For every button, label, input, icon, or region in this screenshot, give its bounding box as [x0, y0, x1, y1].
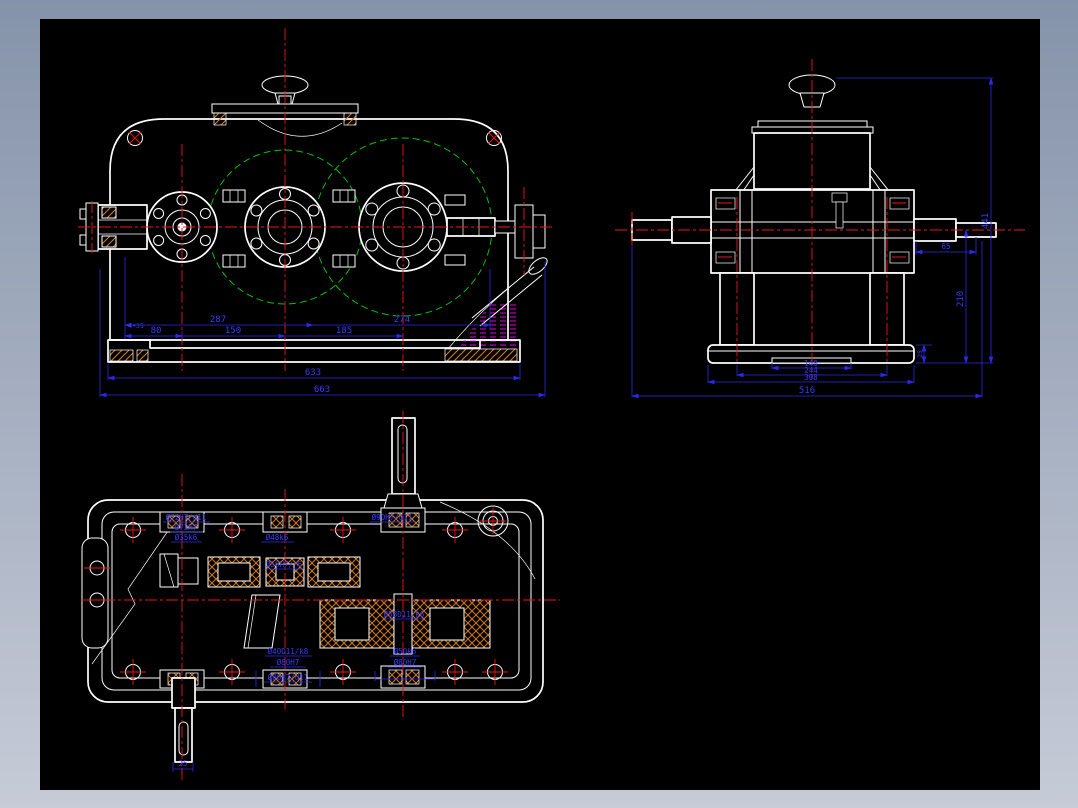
fit-input-cover: Ø72H7/d11: [166, 513, 207, 522]
dim-65: 65: [941, 242, 950, 251]
dim-516: 516: [799, 386, 815, 396]
dim-25-base: 25: [916, 350, 924, 358]
fit-output-cover: Ø90H7/d11: [372, 513, 413, 522]
cad-drawing: 287 274 4+35 80 150 185 633 663: [40, 19, 1040, 790]
plan-left-end-cover: [82, 538, 108, 648]
front-view: 287 274 4+35 80 150 185 633 663: [78, 28, 555, 397]
fit-input-bearing: Ø72H7: [175, 523, 198, 532]
dim-185: 185: [336, 326, 352, 336]
fit-bottom-cover2: Ø80H7/d11: [268, 673, 309, 682]
side-cover: [752, 121, 873, 133]
side-view: 441 210 65 25 140 244 308 516: [615, 59, 1025, 397]
fit-mid-top: Ø48k6: [266, 533, 289, 542]
fit-mid: Ø50H7/r6: [266, 560, 303, 569]
dim-80: 80: [151, 326, 162, 336]
side-bearing-block: [711, 190, 914, 273]
dim-308: 308: [804, 373, 818, 382]
base-front: [108, 340, 520, 362]
fit-out-bearing-b: Ø80H7: [394, 658, 417, 667]
fit-bottom-cover: Ø40D11/k8: [268, 647, 309, 656]
dim-441: 441: [981, 213, 991, 229]
plan-input-shaft: [172, 678, 195, 762]
dim-note: 4+35: [128, 322, 144, 330]
plan-view: Ø72H7/d11 Ø72H7 Ø35k6 Ø48k6 Ø90H7/d11 Ø5…: [82, 411, 560, 781]
dim-150: 150: [225, 326, 241, 336]
fit-bottom-bearing: Ø80H7: [277, 658, 300, 667]
drawing-canvas: 287 274 4+35 80 150 185 633 663: [40, 19, 1040, 790]
dim-210: 210: [956, 291, 966, 307]
fit-input-shaft: Ø35k6: [175, 533, 198, 542]
fit-out-bearing-a: Ø50k6: [394, 647, 417, 656]
plan-gear-train-upper: [160, 554, 360, 587]
dim-274: 274: [394, 315, 410, 325]
dim-287: 287: [210, 315, 226, 325]
dim-633: 633: [305, 368, 321, 378]
dim-25-shaft: 25: [178, 759, 187, 768]
fit-gear: Ø58D11/k6: [384, 610, 425, 619]
dim-663: 663: [314, 385, 330, 395]
